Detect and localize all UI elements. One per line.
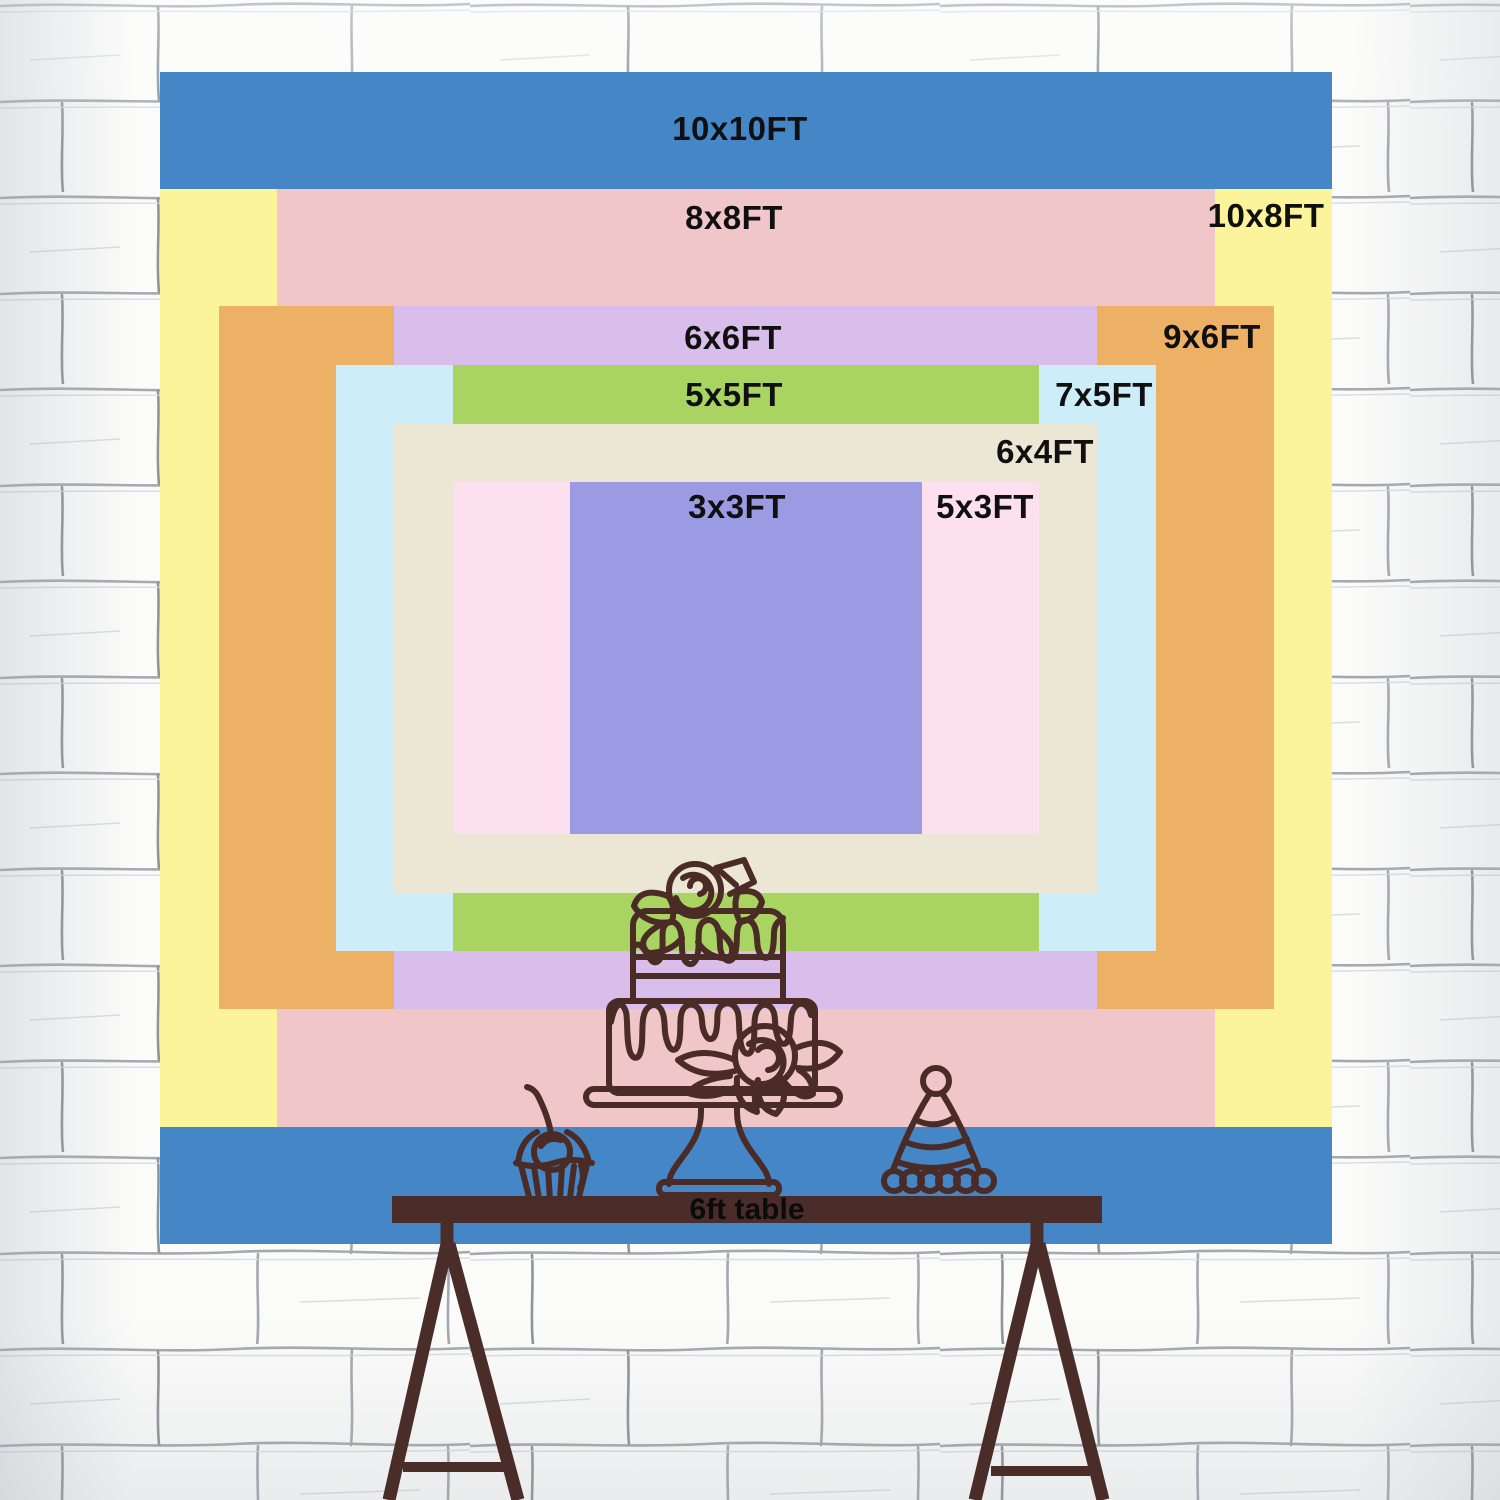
backdrop-size-chart-poster: 10x10FT10x8FT8x8FT9x6FT6x6FT7x5FT5x5FT6x… [0, 0, 1500, 1500]
size-label-3x3ft: 3x3FT [688, 488, 786, 526]
backdrop-rect-3x3ft [570, 482, 922, 834]
size-label-7x5ft: 7x5FT [1055, 376, 1153, 414]
size-chart-layer: 10x10FT10x8FT8x8FT9x6FT6x6FT7x5FT5x5FT6x… [0, 0, 1500, 1500]
size-label-6x4ft: 6x4FT [996, 433, 1094, 471]
size-label-5x5ft: 5x5FT [685, 376, 783, 414]
size-label-10x10ft: 10x10FT [672, 110, 808, 148]
size-label-9x6ft: 9x6FT [1163, 318, 1261, 356]
table-label: 6ft table [689, 1196, 804, 1223]
table-bar: 6ft table [392, 1196, 1102, 1223]
size-label-8x8ft: 8x8FT [685, 199, 783, 237]
size-label-10x8ft: 10x8FT [1208, 197, 1325, 235]
size-label-5x3ft: 5x3FT [936, 488, 1034, 526]
size-label-6x6ft: 6x6FT [684, 319, 782, 357]
